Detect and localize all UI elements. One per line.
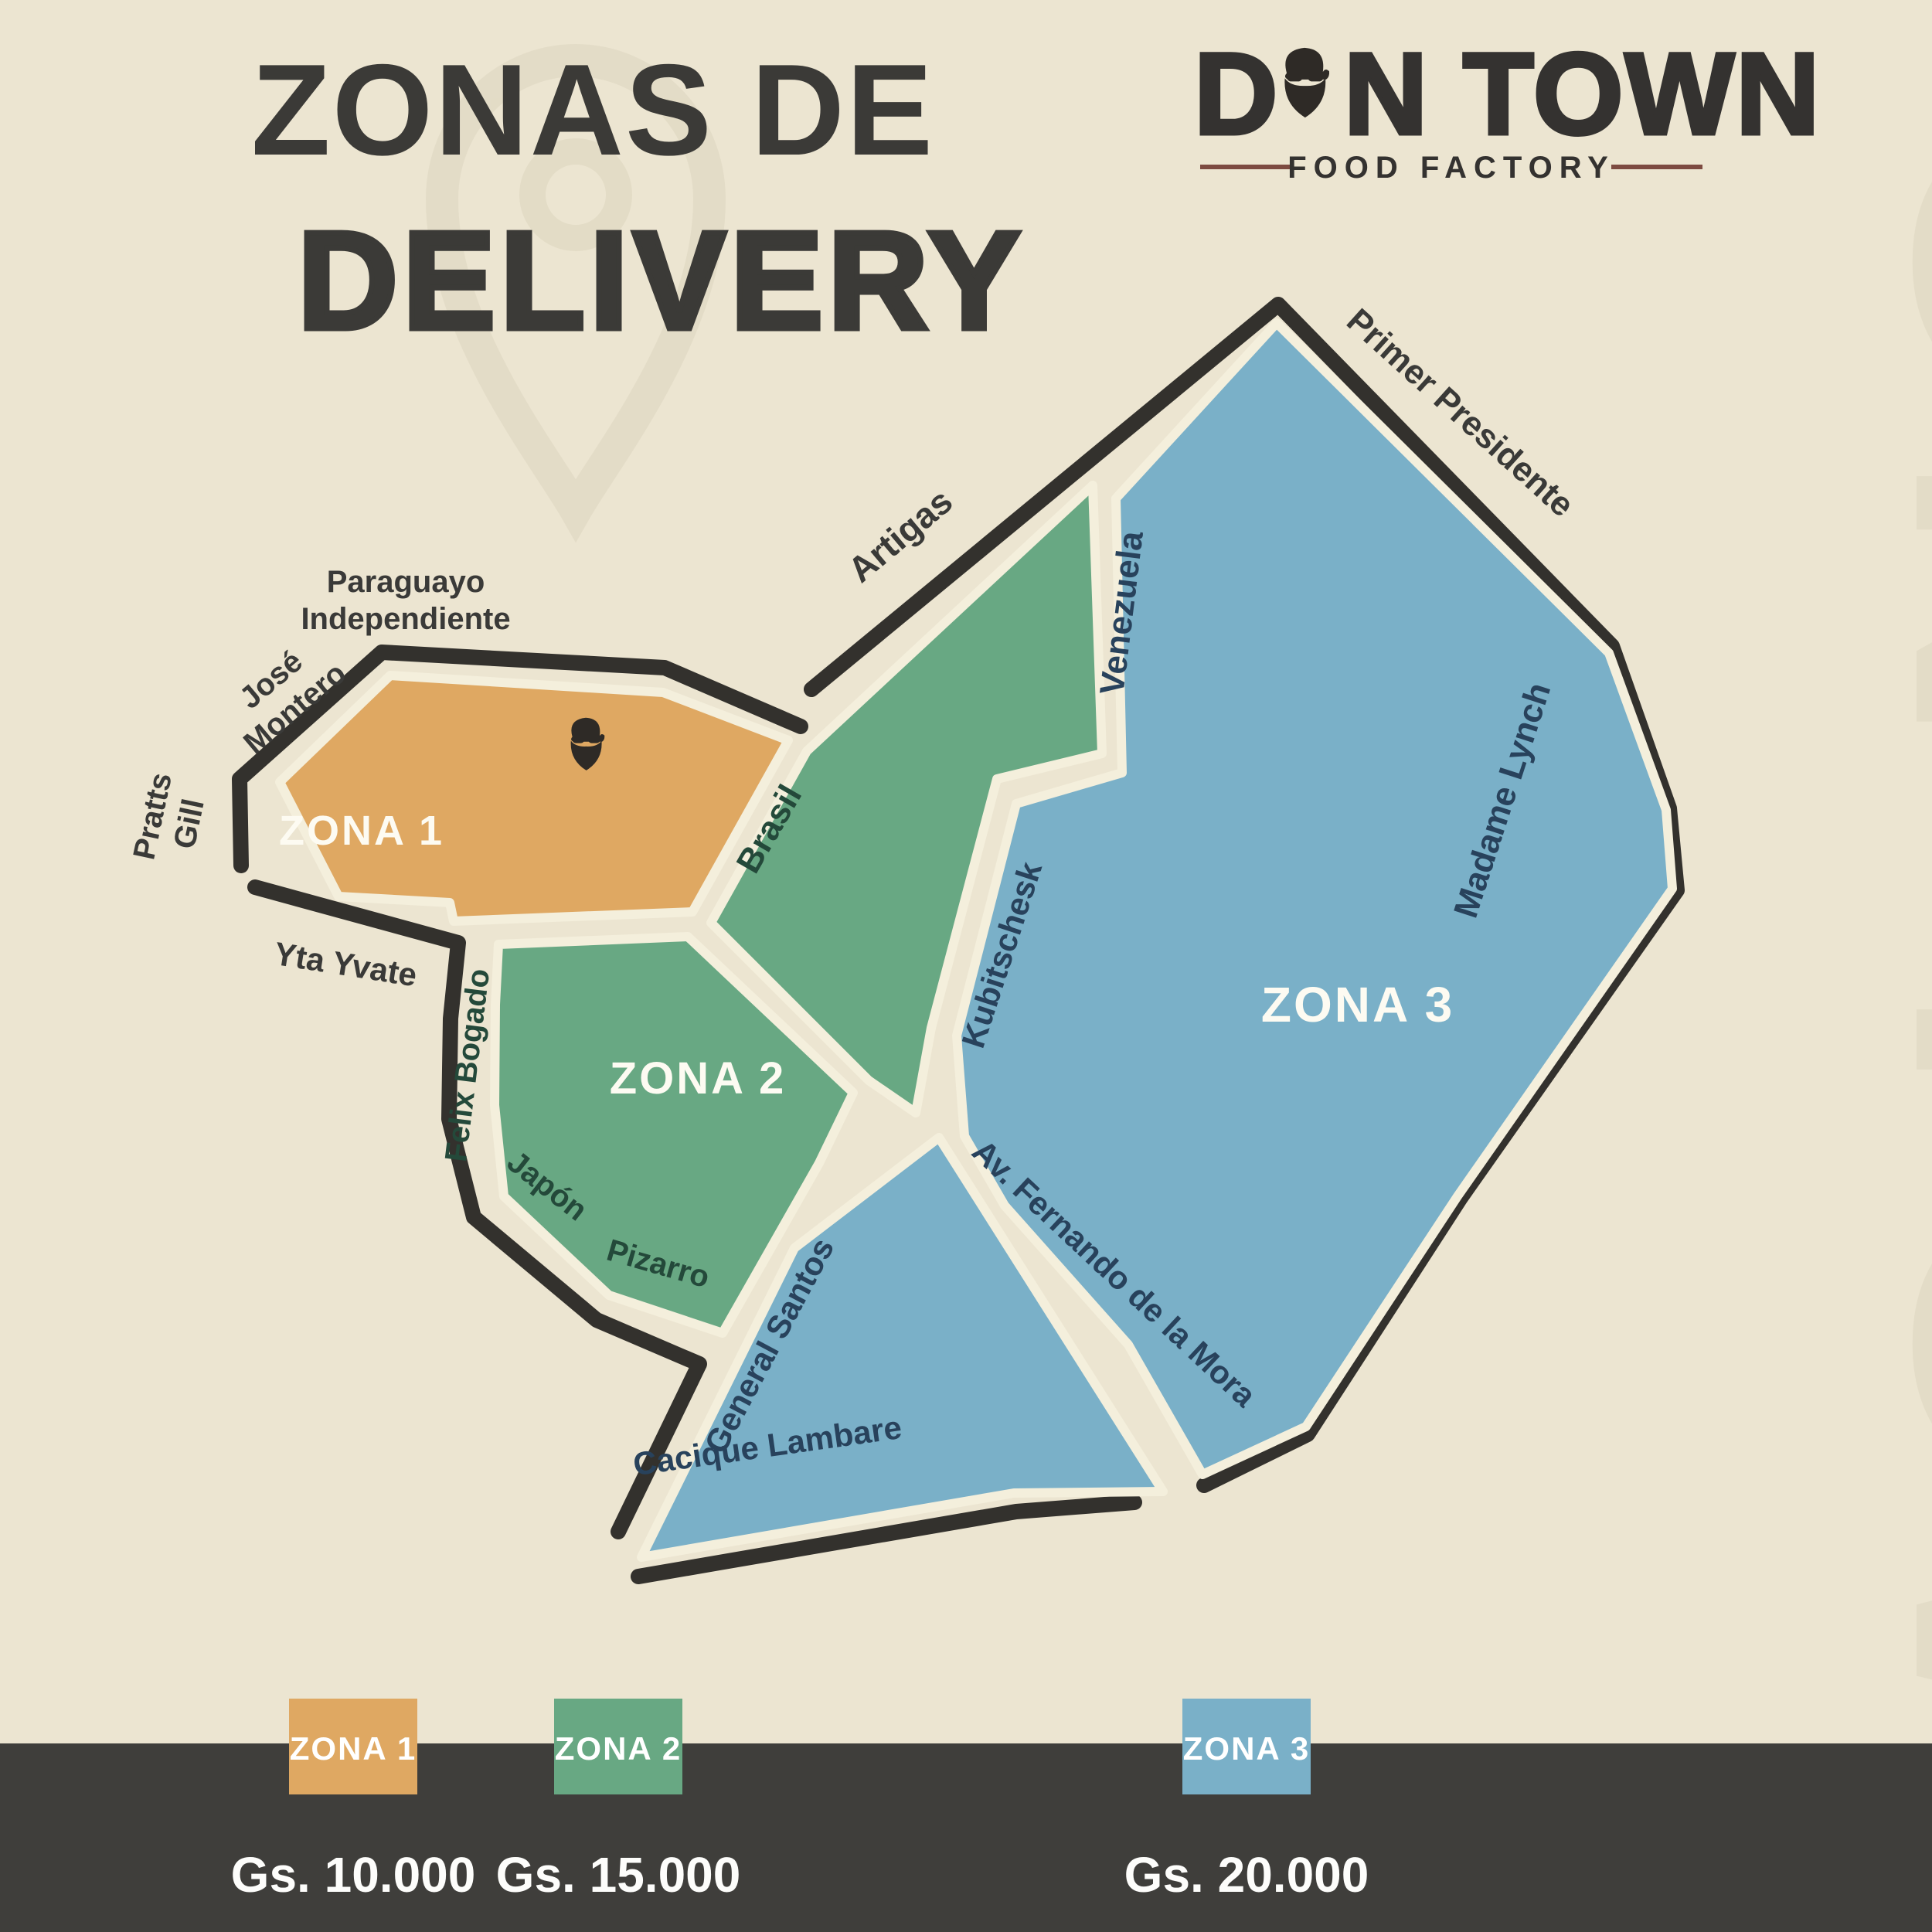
svg-text:Paraguayo: Paraguayo xyxy=(327,565,485,599)
logo-text-ntown: N TOWN xyxy=(1344,29,1821,158)
logo-tagline: FOOD FACTORY xyxy=(1287,151,1615,185)
legend-label-zona3: ZONA 3 xyxy=(1183,1730,1310,1767)
zona-2-map-label: ZONA 2 xyxy=(610,1053,787,1104)
logo-text-d: D xyxy=(1194,29,1277,158)
page-title-line1: ZONAS DE xyxy=(251,37,934,182)
svg-text:Independiente: Independiente xyxy=(301,602,510,636)
zona-1-map-label: ZONA 1 xyxy=(279,808,444,854)
legend-price-zona1: Gs. 10.000 xyxy=(231,1847,476,1903)
delivery-zones-poster: ON TOWN Paraguayo Independiente José Mon… xyxy=(0,0,1932,1932)
logo-line-left xyxy=(1200,165,1291,169)
logo-line-right xyxy=(1611,165,1702,169)
zona-1-region xyxy=(280,675,788,921)
legend-price-zona3: Gs. 20.000 xyxy=(1124,1847,1369,1903)
brand-watermark-text: ON TOWN xyxy=(1828,100,1932,1932)
legend-label-zona1: ZONA 1 xyxy=(290,1730,417,1767)
legend-label-zona2: ZONA 2 xyxy=(555,1730,682,1767)
page-title-line2: DELIVERY xyxy=(298,203,1026,359)
zona-3-map-label: ZONA 3 xyxy=(1261,977,1454,1032)
legend-price-zona2: Gs. 15.000 xyxy=(496,1847,741,1903)
delivery-zones-map-svg: ON TOWN Paraguayo Independiente José Mon… xyxy=(0,0,1932,1932)
